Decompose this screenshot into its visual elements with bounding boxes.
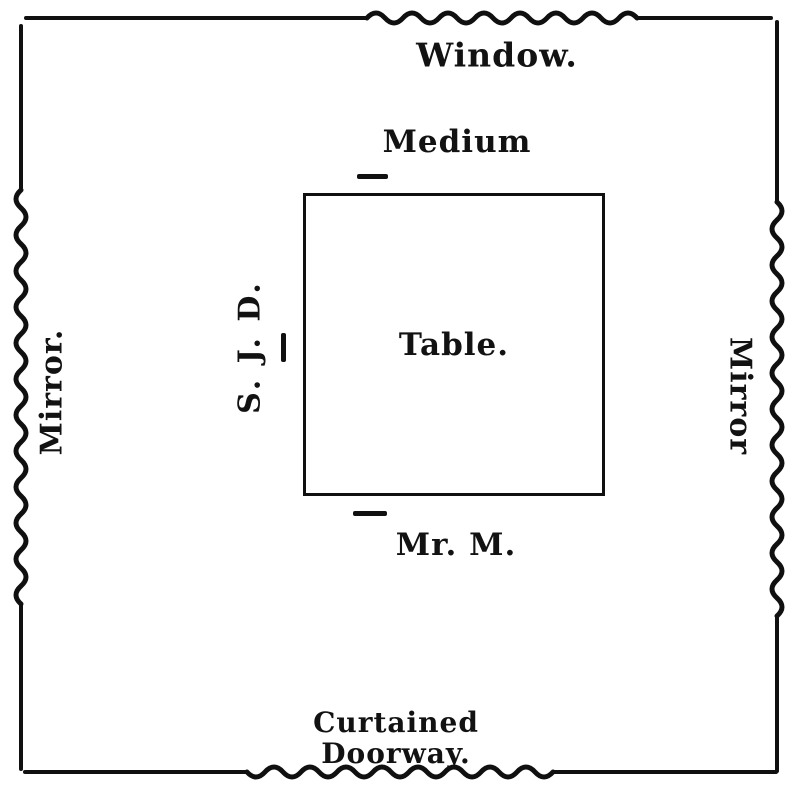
mirror-right-label: Mirror <box>723 337 758 455</box>
window-wavy-line <box>367 13 637 23</box>
curtained-doorway-label-line1: Curtained <box>313 708 479 739</box>
medium-label: Medium <box>383 124 532 160</box>
medium-position-mark <box>357 174 388 179</box>
mr-m-label: Mr. M. <box>396 527 517 563</box>
mirror-left-wavy-line <box>16 190 26 604</box>
seance-room-diagram: Window. Mirror. Mirror Curtained Doorway… <box>0 0 800 794</box>
curtained-doorway-label: Curtained Doorway. <box>313 708 479 770</box>
mirror-right-wavy-line <box>772 202 782 616</box>
curtained-doorway-label-line2: Doorway. <box>313 739 479 770</box>
sjd-position-mark <box>281 333 286 362</box>
window-label: Window. <box>416 36 578 75</box>
sjd-label: S. J. D. <box>233 280 268 414</box>
table-outline: Table. <box>303 193 605 496</box>
mirror-left-label: Mirror. <box>35 329 70 456</box>
mr-m-position-mark <box>353 511 387 516</box>
table-label: Table. <box>399 327 509 363</box>
